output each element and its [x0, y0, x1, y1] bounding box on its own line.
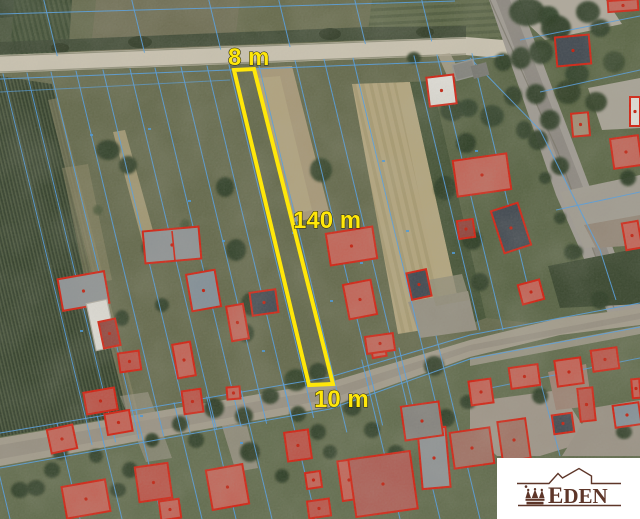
svg-text:8 m: 8 m: [228, 44, 269, 71]
svg-text:140 m: 140 m: [293, 207, 361, 234]
svg-text:EDEN: EDEN: [548, 483, 608, 508]
svg-text:10 m: 10 m: [314, 386, 369, 413]
